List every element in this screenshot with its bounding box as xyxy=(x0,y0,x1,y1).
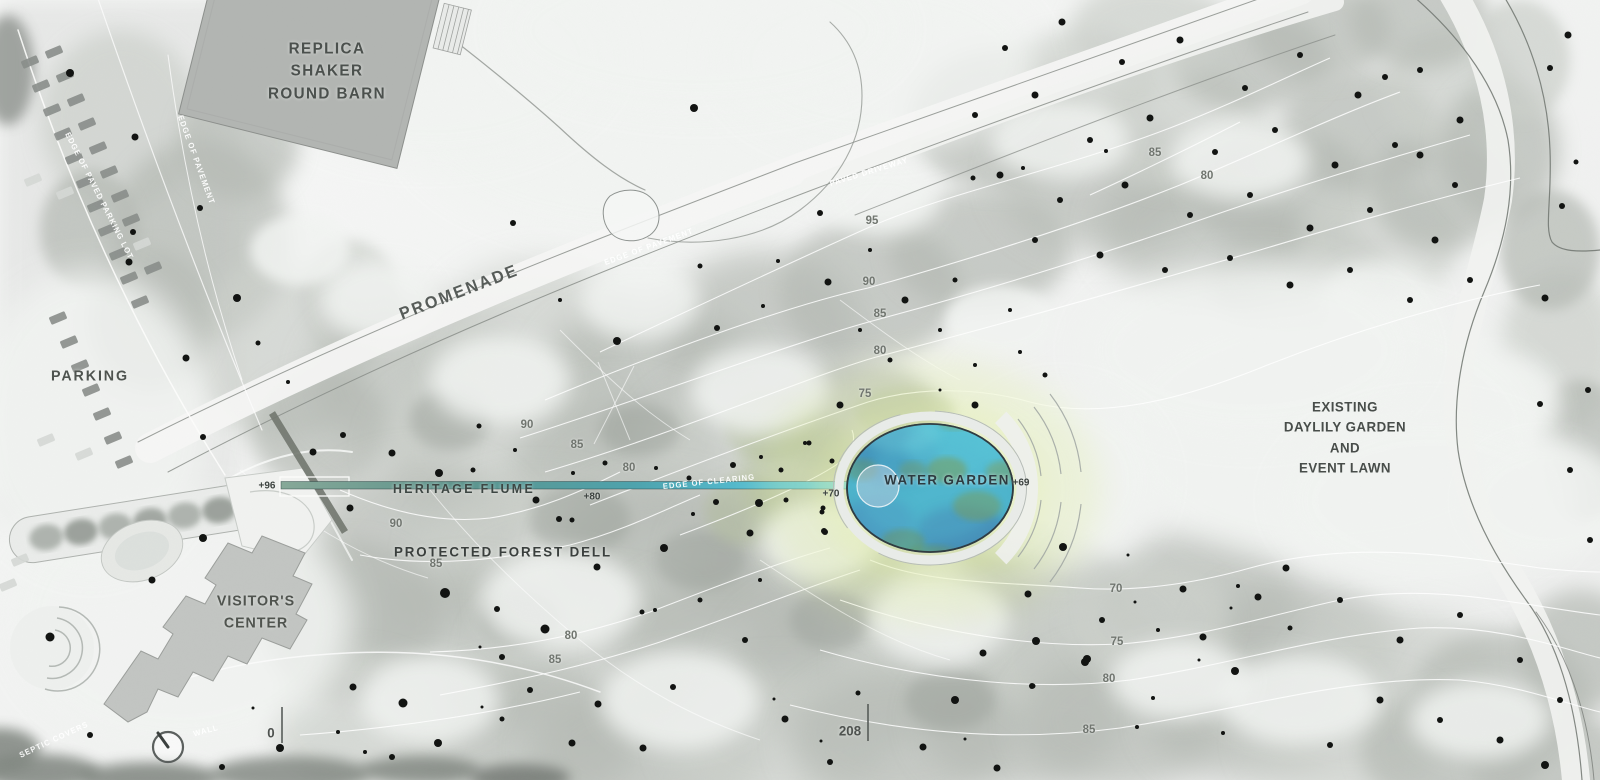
site-plan: REPLICA SHAKER ROUND BARNPARKINGPROMENAD… xyxy=(0,0,1600,780)
site-plan-svg xyxy=(0,0,1600,780)
grain-overlay xyxy=(0,0,1600,780)
